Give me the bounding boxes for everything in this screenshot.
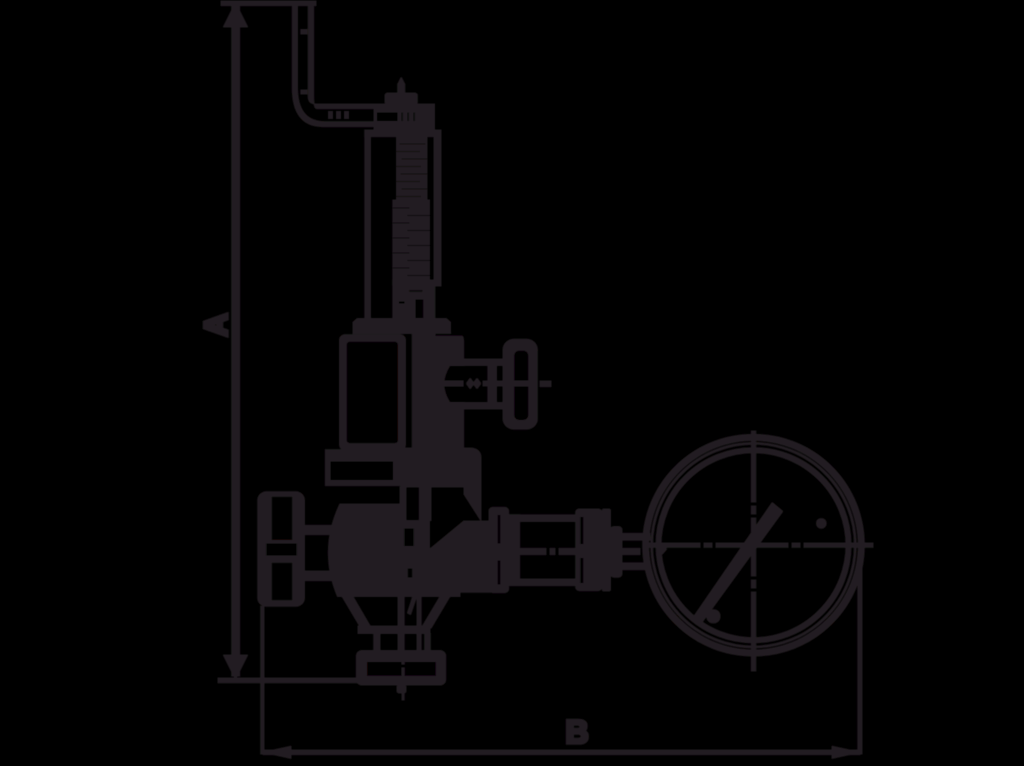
svg-text:B: B (566, 714, 589, 750)
svg-text:A: A (198, 313, 234, 336)
